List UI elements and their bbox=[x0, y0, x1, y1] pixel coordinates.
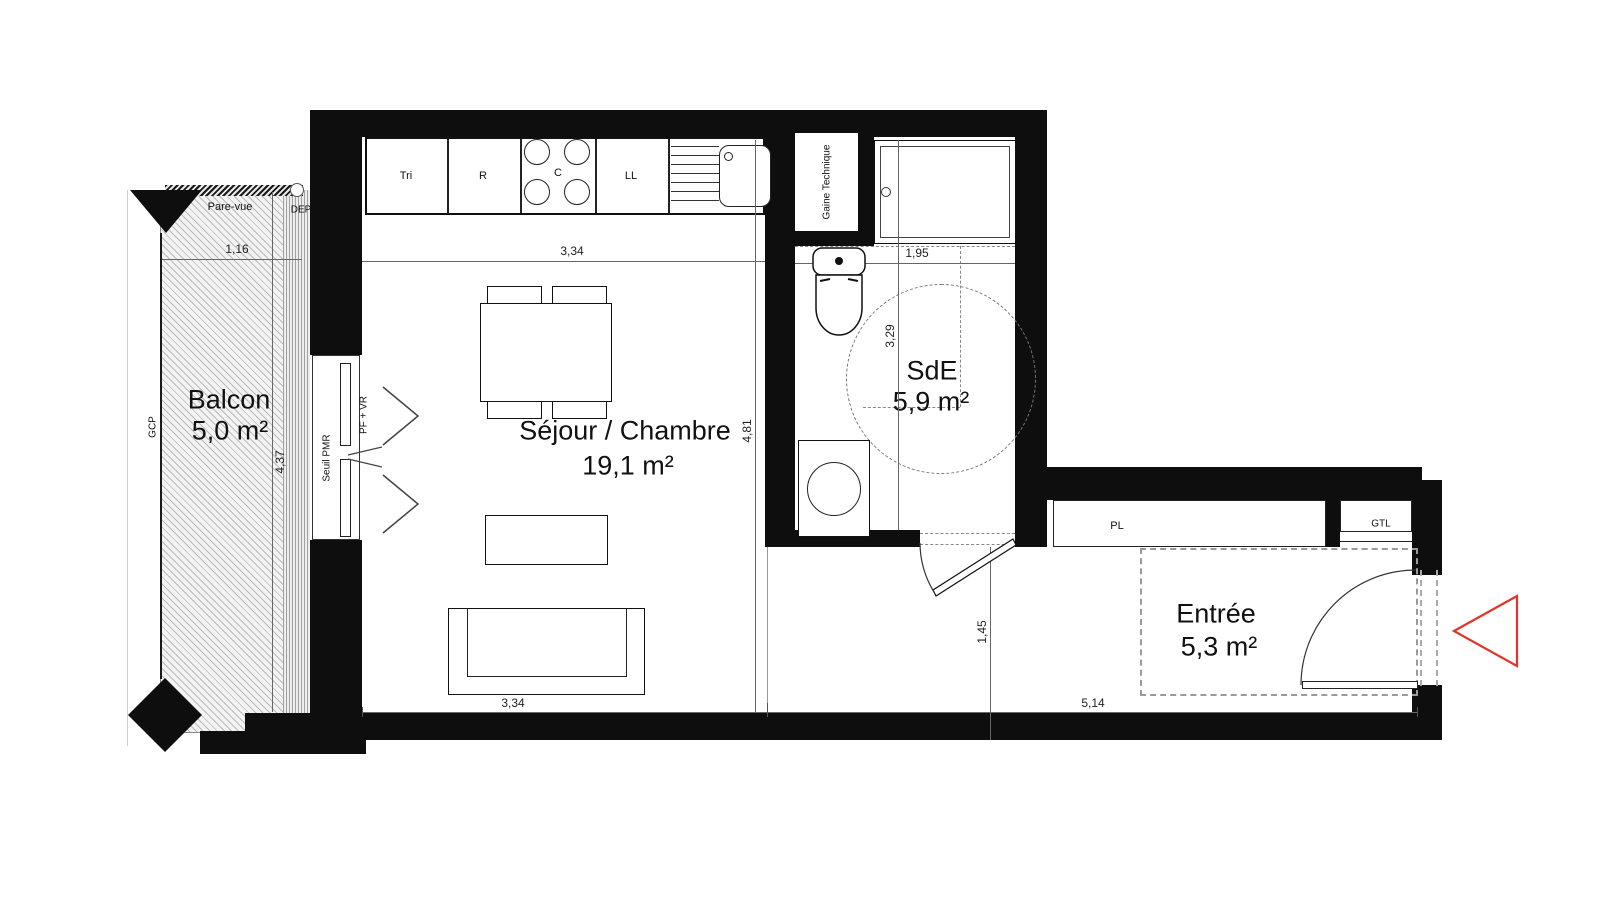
toilet-flush-button bbox=[835, 257, 843, 265]
window-swing-chevron bbox=[383, 387, 418, 445]
entry-door-swing-arc bbox=[1301, 570, 1416, 685]
plan-overlay bbox=[0, 0, 1600, 918]
toilet-bowl bbox=[816, 275, 862, 335]
balcony-corner-diamond bbox=[128, 678, 202, 752]
floor-plan: Pare-vue DEP GCP Balcon 5,0 m² 1,16 4,37… bbox=[0, 0, 1600, 918]
balcony-corner-triangle bbox=[130, 190, 202, 233]
window-swing-chevron bbox=[383, 475, 418, 533]
sde-door-leaf bbox=[933, 539, 1016, 596]
window-handle-marks bbox=[348, 447, 382, 467]
entrance-arrow bbox=[1454, 596, 1517, 666]
sde-door-swing-arc bbox=[920, 543, 934, 592]
